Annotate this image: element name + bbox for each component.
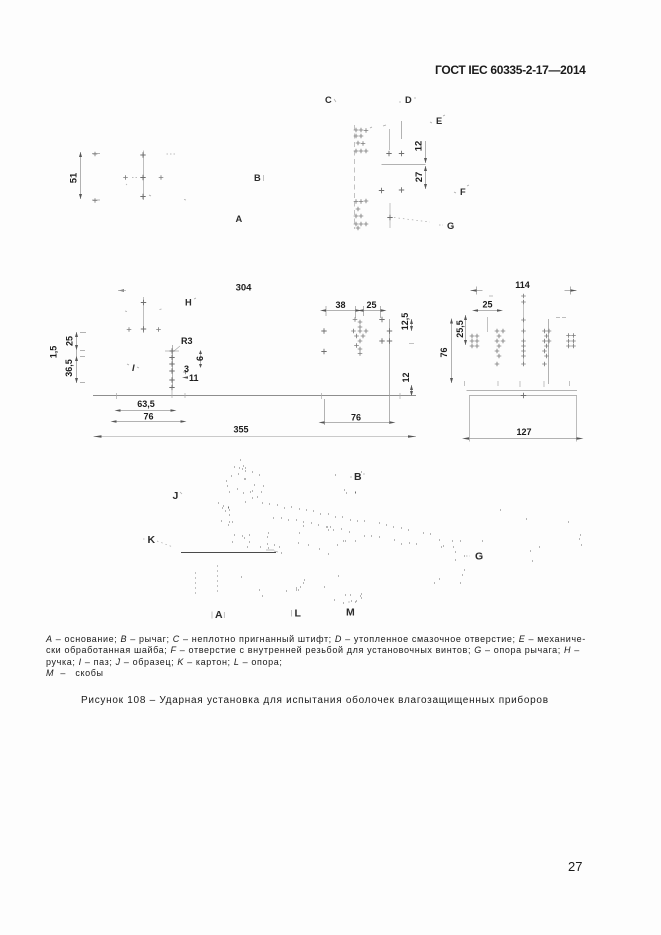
svg-text:304: 304 — [236, 283, 253, 294]
svg-text:76: 76 — [439, 347, 449, 357]
svg-text:A: A — [236, 214, 243, 224]
svg-text:12,5: 12,5 — [400, 313, 410, 331]
svg-text:A: A — [215, 609, 223, 621]
svg-text:L: L — [295, 608, 302, 620]
svg-text:C: C — [325, 95, 332, 105]
svg-text:25,5: 25,5 — [455, 320, 465, 338]
svg-text:12: 12 — [401, 372, 411, 382]
svg-text:B: B — [354, 471, 362, 483]
svg-text:127: 127 — [516, 427, 531, 437]
svg-text:K: K — [148, 534, 156, 546]
svg-text:B: B — [254, 173, 261, 183]
svg-text:25: 25 — [482, 300, 492, 310]
svg-text:R3: R3 — [181, 336, 193, 346]
svg-text:I: I — [132, 363, 135, 373]
svg-text:355: 355 — [233, 425, 248, 435]
svg-text:76: 76 — [143, 412, 153, 422]
svg-text:11: 11 — [189, 373, 199, 383]
svg-text:76: 76 — [351, 413, 361, 423]
svg-text:38: 38 — [335, 300, 345, 310]
svg-text:63,5: 63,5 — [137, 399, 155, 409]
svg-text:36,5: 36,5 — [64, 359, 74, 377]
svg-text:1,5: 1,5 — [48, 346, 58, 359]
svg-text:D: D — [405, 95, 412, 105]
svg-text:G: G — [475, 551, 483, 563]
svg-text:27: 27 — [414, 172, 425, 183]
svg-text:12: 12 — [414, 141, 425, 152]
svg-text:G: G — [447, 221, 454, 231]
svg-text:F: F — [460, 187, 466, 197]
svg-text:6: 6 — [195, 356, 205, 361]
svg-text:51: 51 — [69, 172, 80, 183]
svg-text:M: M — [346, 607, 355, 619]
svg-text:114: 114 — [515, 280, 530, 290]
svg-text:25: 25 — [64, 336, 74, 346]
svg-text:H: H — [185, 298, 192, 308]
svg-text:J: J — [173, 490, 179, 502]
svg-text:E: E — [436, 116, 442, 126]
svg-text:25: 25 — [366, 300, 376, 310]
